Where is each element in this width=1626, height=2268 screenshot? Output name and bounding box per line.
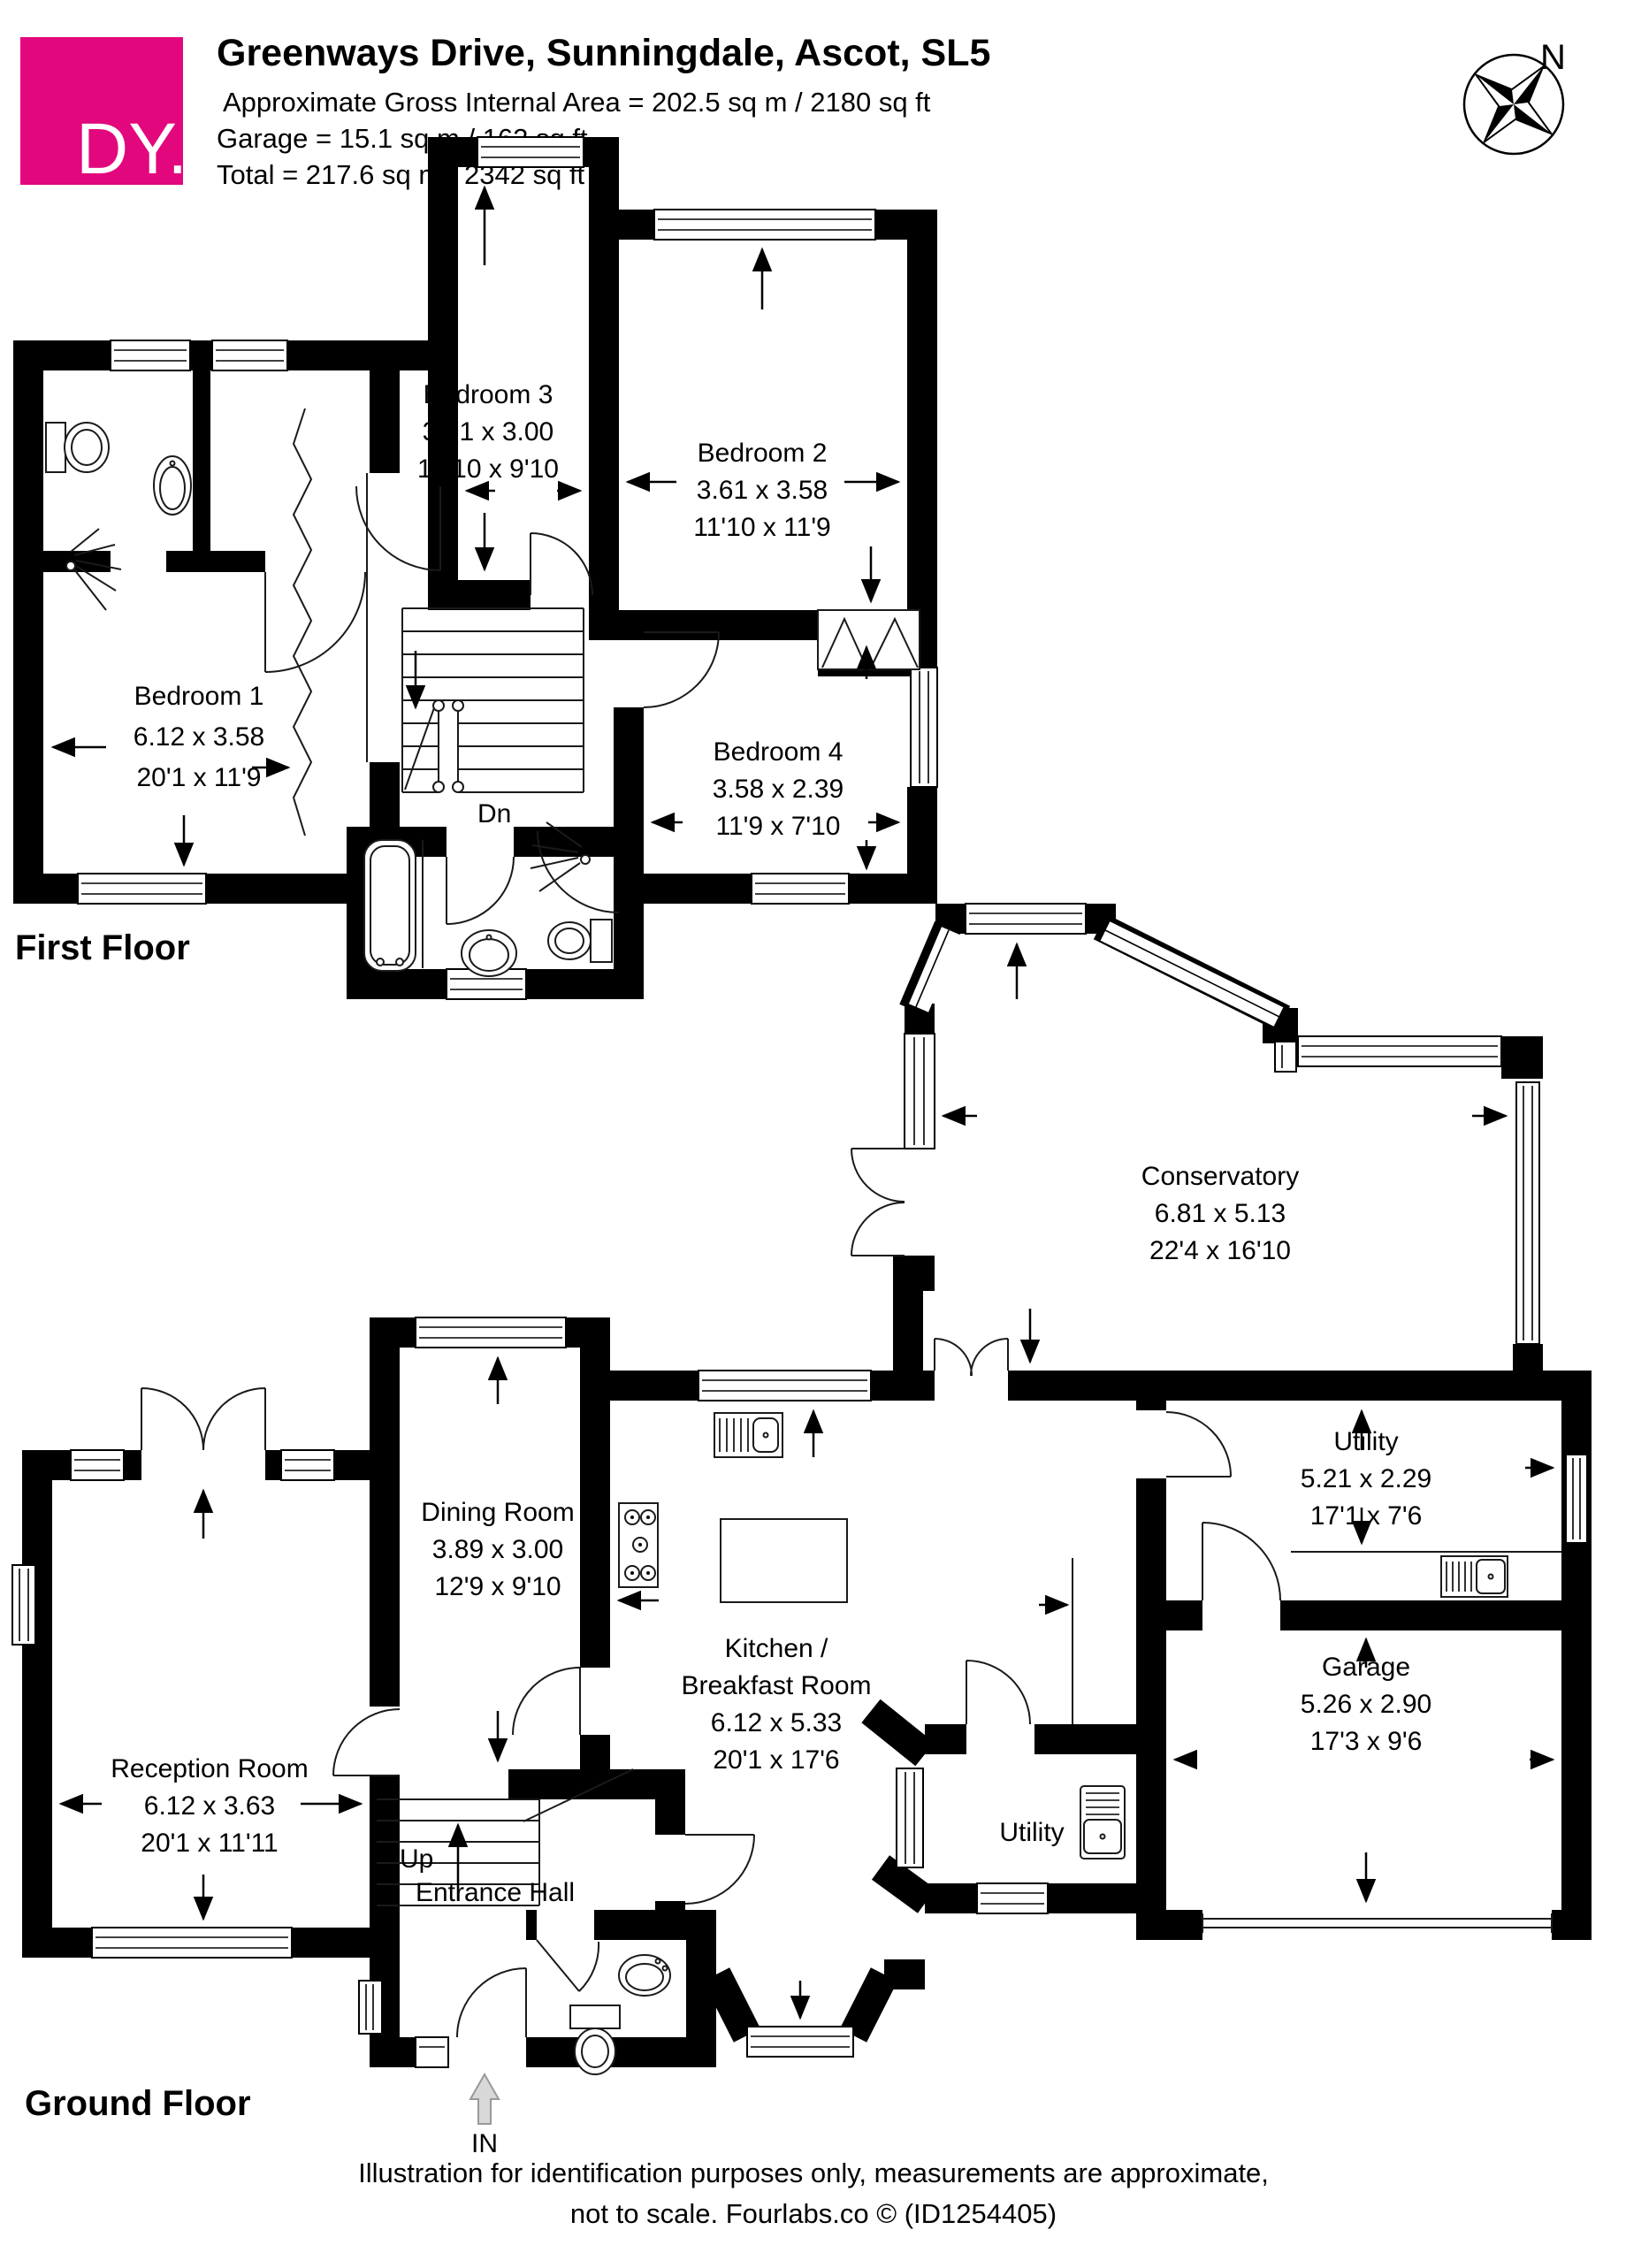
room-dim-metric-utility: 5.21 x 2.29 <box>1301 1464 1431 1493</box>
kitchen-island <box>721 1519 847 1602</box>
built-in-wardrobe-symbol <box>818 610 920 669</box>
room-label-kitchen-line2: Breakfast Room <box>681 1671 871 1700</box>
room-label-utility: Utility <box>1333 1427 1398 1456</box>
angled-walls <box>716 927 1284 2035</box>
bathtub-symbol <box>364 840 423 971</box>
page-title: Greenways Drive, Sunningdale, Ascot, SL5 <box>217 32 990 74</box>
first-floor-doors <box>265 486 719 924</box>
small-utility-sink-symbol <box>1080 1786 1125 1859</box>
staircase-down: Dn <box>402 608 584 829</box>
room-dim-imperial-bedroom-3: 12'10 x 9'10 <box>417 454 559 484</box>
room-dim-metric-kitchen: 6.12 x 5.33 <box>711 1708 842 1737</box>
first-floor-plan: Dn <box>13 137 937 999</box>
brand-logo-text: DY. <box>76 109 187 189</box>
room-dim-metric-bedroom-2: 3.61 x 3.58 <box>697 476 828 505</box>
ensuite-toilet-symbol <box>46 423 109 472</box>
room-label-dining: Dining Room <box>421 1498 574 1527</box>
floorplan-page: DY. Greenways Drive, Sunningdale, Ascot,… <box>0 0 1626 2264</box>
compass-rose-icon: N <box>1447 37 1581 172</box>
room-label-reception: Reception Room <box>111 1754 308 1783</box>
garage-door-line <box>1202 1913 1552 1933</box>
kitchen-hob-symbol <box>619 1503 658 1587</box>
room-dim-imperial-dining: 12'9 x 9'10 <box>434 1572 561 1601</box>
room-dim-imperial-bedroom-2: 11'10 x 11'9 <box>693 513 830 542</box>
room-label-conservatory: Conservatory <box>1141 1162 1299 1191</box>
room-label-kitchen-line1: Kitchen / <box>725 1634 828 1663</box>
room-dim-imperial-kitchen: 20'1 x 17'6 <box>713 1745 839 1775</box>
ground-floor-plan: Up <box>12 904 1592 2158</box>
room-dim-imperial-bedroom-4: 11'9 x 7'10 <box>715 812 840 841</box>
wardrobe-zigzag-line <box>294 409 311 836</box>
room-dim-imperial-utility: 17'1 x 7'6 <box>1310 1501 1423 1531</box>
stairs-up-label: Up <box>400 1844 433 1874</box>
room-dim-imperial-bedroom-1: 20'1 x 11'9 <box>136 763 261 792</box>
utility-sink-symbol <box>1291 1552 1561 1597</box>
compass-north-label: N <box>1540 38 1566 77</box>
gross-internal-area-line: Approximate Gross Internal Area = 202.5 … <box>223 87 931 118</box>
wc-toilet-symbol <box>570 2005 620 2074</box>
bathroom-sink-symbol <box>462 930 516 976</box>
footer-disclaimer-line1: Illustration for identification purposes… <box>358 2157 1269 2188</box>
room-dim-metric-garage: 5.26 x 2.90 <box>1301 1690 1431 1719</box>
ensuite-sink-symbol <box>154 456 191 515</box>
room-dim-metric-conservatory: 6.81 x 5.13 <box>1155 1199 1286 1228</box>
room-dim-metric-bedroom-4: 3.58 x 2.39 <box>713 775 844 804</box>
room-dim-metric-dining: 3.89 x 3.00 <box>432 1535 563 1564</box>
first-floor-title: First Floor <box>15 928 190 967</box>
bathroom-toilet-symbol <box>548 920 612 962</box>
room-dim-metric-reception: 6.12 x 3.63 <box>144 1791 275 1821</box>
room-label-entrance-hall: Entrance Hall <box>416 1878 575 1907</box>
footer-disclaimer-line2: not to scale. Fourlabs.co © (ID1254405) <box>570 2198 1057 2229</box>
room-label-small-utility: Utility <box>999 1818 1064 1847</box>
room-label-bedroom-4: Bedroom 4 <box>714 737 844 767</box>
room-dim-metric-bedroom-1: 6.12 x 3.58 <box>134 722 264 752</box>
ground-floor-title: Ground Floor <box>25 2084 251 2123</box>
room-dim-imperial-conservatory: 22'4 x 16'10 <box>1149 1236 1291 1265</box>
room-label-bedroom-3: Bedroom 3 <box>424 380 553 409</box>
room-dim-metric-bedroom-3: 3.91 x 3.00 <box>423 417 553 447</box>
entrance-in-label: IN <box>471 2129 498 2158</box>
stairs-down-label: Dn <box>477 799 511 829</box>
entrance-arrow-icon <box>470 2074 499 2124</box>
room-label-garage: Garage <box>1322 1653 1410 1682</box>
footer: Illustration for identification purposes… <box>358 2157 1269 2229</box>
room-dim-imperial-reception: 20'1 x 11'11 <box>141 1829 278 1858</box>
room-label-bedroom-2: Bedroom 2 <box>698 439 828 468</box>
first-floor-walls <box>13 137 937 999</box>
kitchen-sink-symbol <box>714 1413 782 1457</box>
room-dim-imperial-garage: 17'3 x 9'6 <box>1310 1727 1423 1756</box>
wc-sink-symbol <box>619 1955 670 1996</box>
room-label-bedroom-1: Bedroom 1 <box>134 682 264 711</box>
